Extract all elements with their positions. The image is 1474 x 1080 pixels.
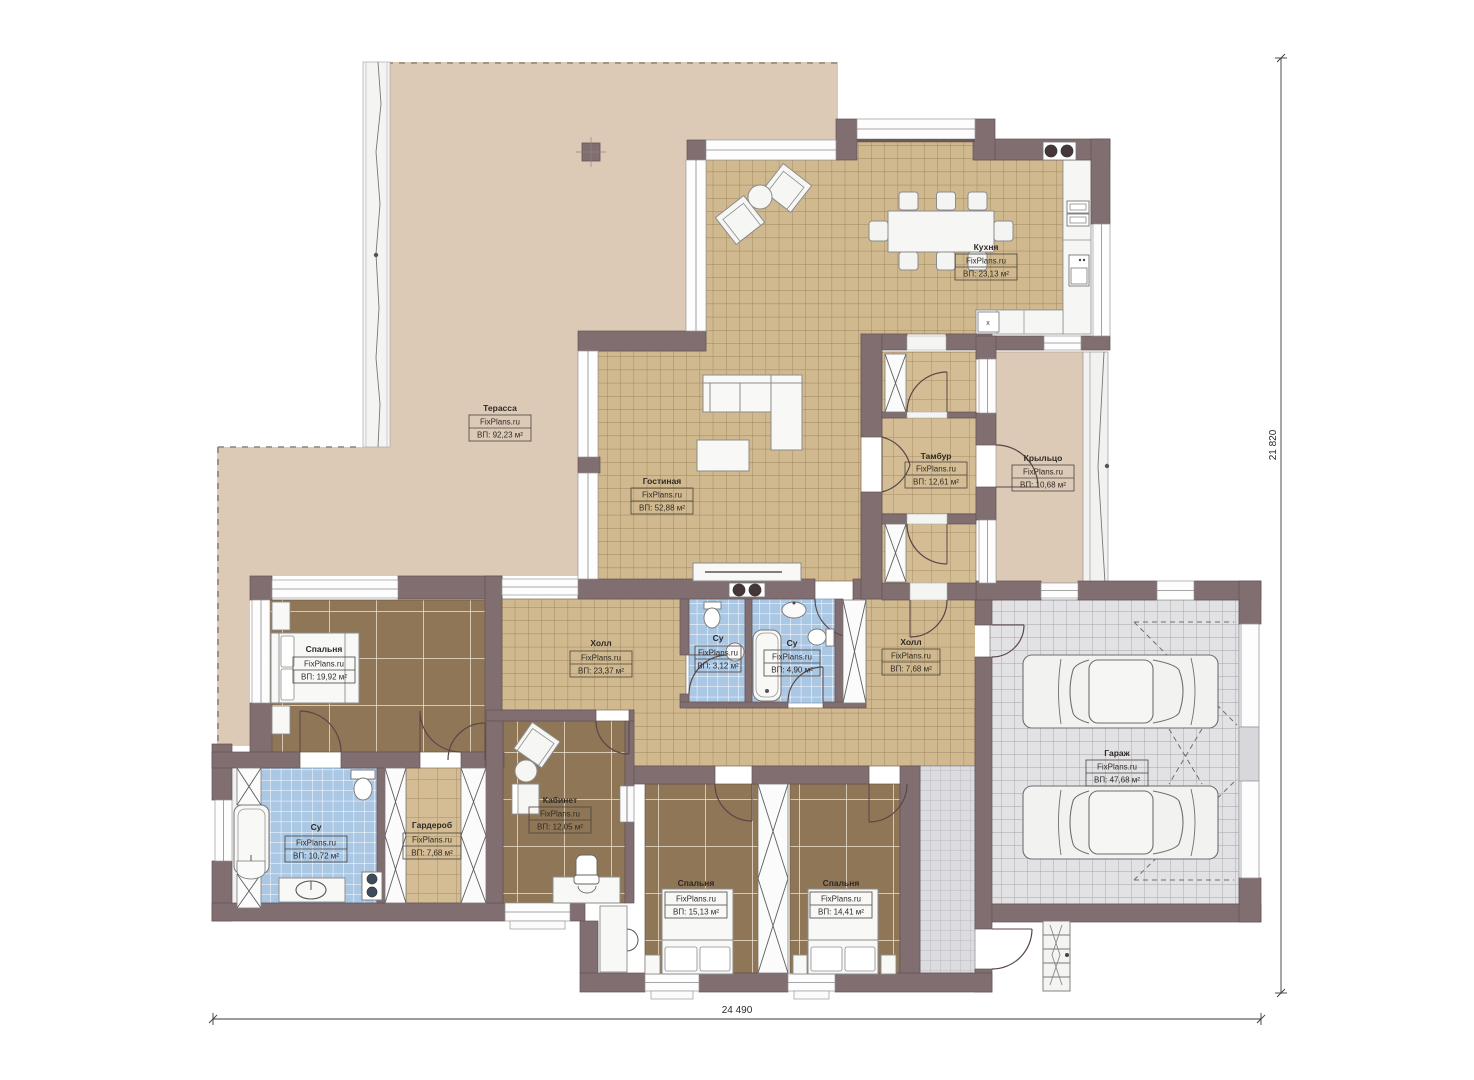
svg-text:Спальня: Спальня xyxy=(823,878,860,888)
svg-text:FixPlans.ru: FixPlans.ru xyxy=(891,652,931,661)
svg-text:FixPlans.ru: FixPlans.ru xyxy=(540,810,580,819)
svg-text:FixPlans.ru: FixPlans.ru xyxy=(412,836,452,845)
svg-text:FixPlans.ru: FixPlans.ru xyxy=(296,839,336,848)
svg-text:Су: Су xyxy=(311,822,322,832)
svg-text:Су: Су xyxy=(713,633,724,643)
svg-text:ВП: 52,88 м²: ВП: 52,88 м² xyxy=(639,504,685,513)
svg-text:Спальня: Спальня xyxy=(678,878,715,888)
svg-text:ВП: 12,61 м²: ВП: 12,61 м² xyxy=(913,478,959,487)
svg-text:ВП: 7,68 м²: ВП: 7,68 м² xyxy=(411,849,453,858)
svg-text:FixPlans.ru: FixPlans.ru xyxy=(772,653,812,662)
svg-text:Спальня: Спальня xyxy=(306,644,343,654)
svg-text:Тамбур: Тамбур xyxy=(921,451,952,461)
svg-text:FixPlans.ru: FixPlans.ru xyxy=(642,491,682,500)
svg-text:ВП: 10,72 м²: ВП: 10,72 м² xyxy=(293,852,339,861)
svg-text:FixPlans.ru: FixPlans.ru xyxy=(304,660,344,669)
svg-text:ВП: 23,13 м²: ВП: 23,13 м² xyxy=(963,270,1009,279)
svg-text:Крыльцо: Крыльцо xyxy=(1024,453,1063,463)
svg-text:ВП: 14,41 м²: ВП: 14,41 м² xyxy=(818,908,864,917)
svg-text:Кухня: Кухня xyxy=(974,242,999,252)
svg-text:Су: Су xyxy=(787,638,798,648)
svg-text:24 490: 24 490 xyxy=(722,1005,753,1016)
svg-text:FixPlans.ru: FixPlans.ru xyxy=(480,418,520,427)
svg-text:ВП: 15,13 м²: ВП: 15,13 м² xyxy=(673,908,719,917)
svg-text:ВП: 3,12 м²: ВП: 3,12 м² xyxy=(697,662,739,671)
svg-text:Гостиная: Гостиная xyxy=(643,476,681,486)
svg-text:ВП: 4,90 м²: ВП: 4,90 м² xyxy=(771,666,813,675)
svg-text:Гараж: Гараж xyxy=(1104,748,1130,758)
svg-text:FixPlans.ru: FixPlans.ru xyxy=(821,895,861,904)
svg-text:FixPlans.ru: FixPlans.ru xyxy=(676,895,716,904)
svg-text:Холл: Холл xyxy=(900,637,921,647)
svg-text:Гардероб: Гардероб xyxy=(412,820,452,830)
svg-text:ВП: 10,68 м²: ВП: 10,68 м² xyxy=(1020,481,1066,490)
svg-text:FixPlans.ru: FixPlans.ru xyxy=(698,649,738,658)
svg-text:Кабинет: Кабинет xyxy=(543,795,577,805)
svg-text:FixPlans.ru: FixPlans.ru xyxy=(1097,763,1137,772)
svg-text:FixPlans.ru: FixPlans.ru xyxy=(581,654,621,663)
svg-text:FixPlans.ru: FixPlans.ru xyxy=(966,257,1006,266)
svg-text:ВП: 23,37 м²: ВП: 23,37 м² xyxy=(578,667,624,676)
svg-text:ВП: 19,92 м²: ВП: 19,92 м² xyxy=(301,673,347,682)
svg-text:FixPlans.ru: FixPlans.ru xyxy=(916,465,956,474)
svg-text:x: x xyxy=(986,320,990,327)
svg-text:Холл: Холл xyxy=(590,638,611,648)
svg-text:ВП: 12,05 м²: ВП: 12,05 м² xyxy=(537,823,583,832)
svg-text:21 820: 21 820 xyxy=(1268,429,1279,460)
svg-text:FixPlans.ru: FixPlans.ru xyxy=(1023,468,1063,477)
svg-text:ВП: 7,68 м²: ВП: 7,68 м² xyxy=(890,665,932,674)
svg-text:ВП: 47,68 м²: ВП: 47,68 м² xyxy=(1094,776,1140,785)
svg-text:ВП: 92,23 м²: ВП: 92,23 м² xyxy=(477,431,523,440)
svg-text:Терасса: Терасса xyxy=(483,403,517,413)
